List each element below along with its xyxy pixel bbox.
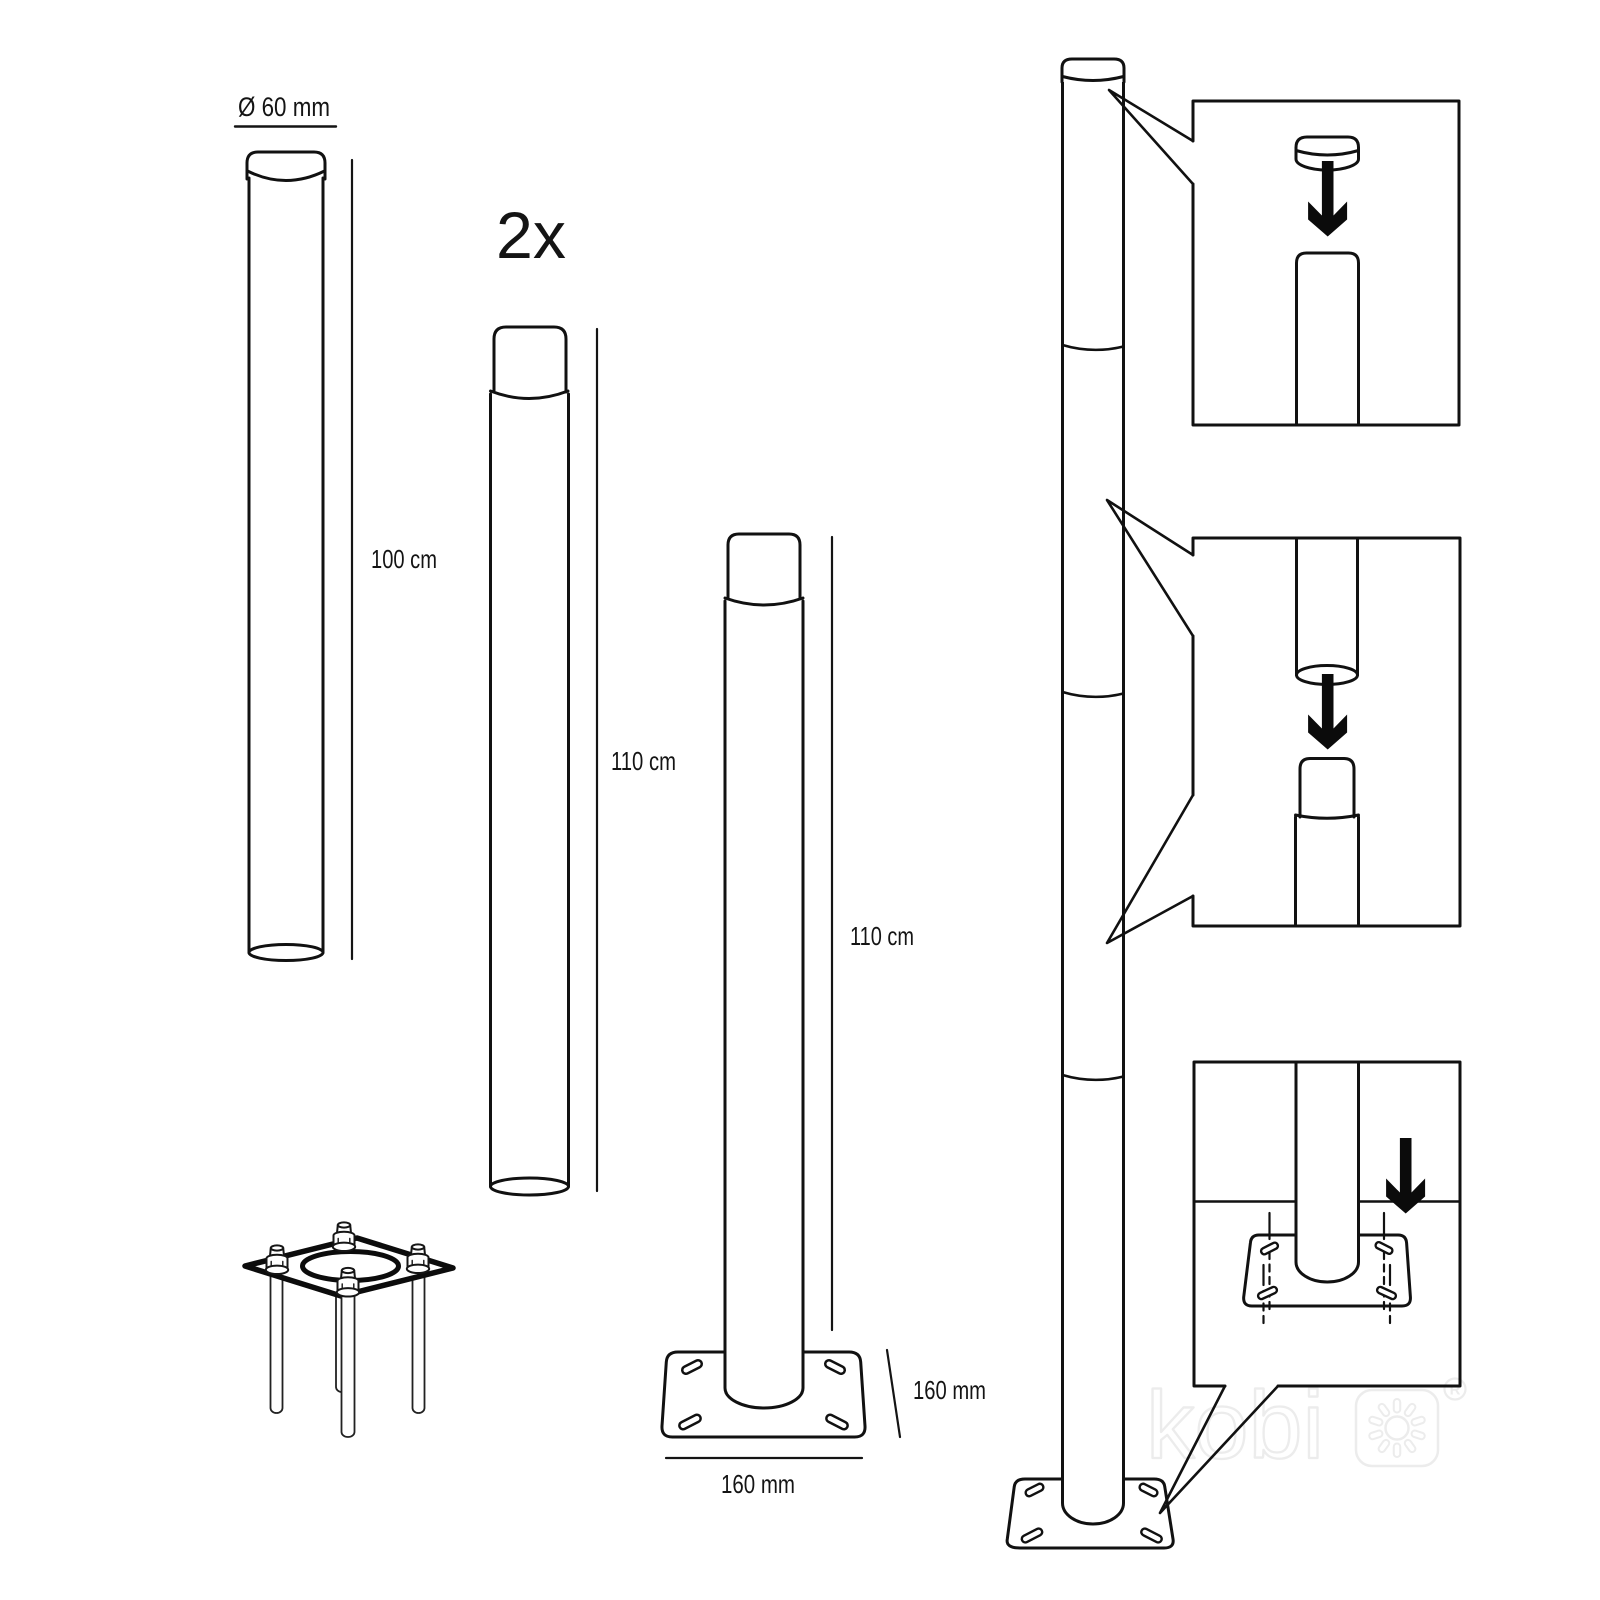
svg-text:100 cm: 100 cm [371, 544, 437, 574]
svg-text:kobi: kobi [1146, 1372, 1324, 1479]
svg-text:110 cm: 110 cm [850, 921, 914, 951]
svg-text:Ø 60 mm: Ø 60 mm [238, 92, 330, 122]
svg-text:2x: 2x [496, 198, 566, 272]
svg-text:160 mm: 160 mm [721, 1469, 795, 1499]
svg-text:110 cm: 110 cm [611, 746, 676, 776]
svg-text:160 mm: 160 mm [913, 1375, 986, 1405]
